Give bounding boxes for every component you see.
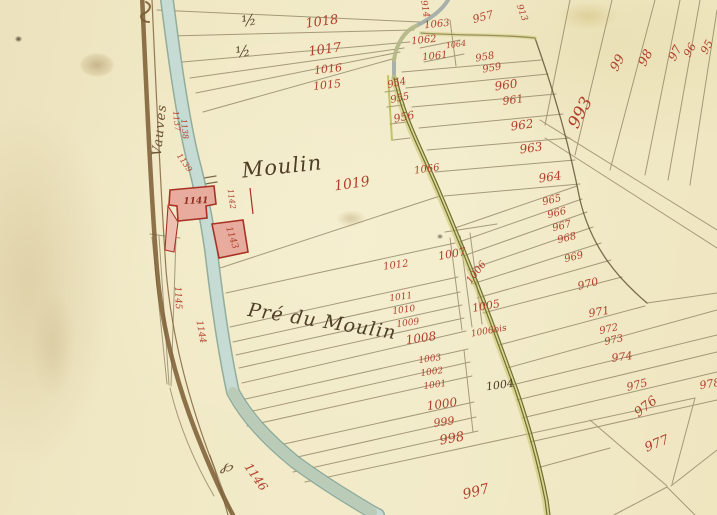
building-1142: 1142	[226, 188, 237, 209]
parcel-1018: 1018	[305, 13, 340, 30]
place-label-vauves: Vauves	[151, 103, 169, 156]
parcel-968: 968	[557, 232, 578, 246]
parcel-962: 962	[510, 117, 534, 132]
parcel-973: 973	[604, 334, 625, 348]
building-1141: 1141	[183, 197, 208, 207]
parcel-1006bis: 1006bis	[470, 324, 507, 339]
parcel-1138: 1138	[179, 118, 189, 139]
fraction-label: ½	[241, 12, 258, 29]
parcel-954: 954	[387, 77, 408, 91]
flow-mark: ℘	[220, 457, 235, 475]
parcel-1062: 1062	[411, 35, 437, 48]
parcel-1016: 1016	[314, 62, 343, 76]
parcel-913: 913	[514, 3, 528, 22]
fraction-label: ½	[235, 43, 252, 60]
parcel-1146: 1146	[242, 461, 269, 493]
parcel-1007: 1007	[437, 246, 466, 262]
parcel-1006: 1006	[465, 260, 489, 286]
parcel-96: 96	[682, 41, 698, 59]
place-label-moulin: Moulin	[241, 152, 323, 181]
parcel-1002: 1002	[420, 367, 444, 379]
place-label-pre-du-moulin: Pré du Moulin	[246, 301, 397, 343]
parcel-1015: 1015	[313, 78, 342, 92]
parcel-961: 961	[502, 93, 524, 107]
parcel-974: 974	[611, 350, 633, 364]
parcel-975: 975	[625, 377, 648, 393]
parcel-1017: 1017	[308, 41, 343, 58]
parcel-1012: 1012	[383, 259, 410, 272]
parcel-1000: 1000	[426, 396, 458, 412]
parcel-998: 998	[439, 430, 466, 447]
parcel-99: 99	[608, 53, 627, 74]
cadastral-map: MoulinPré du MoulinVauves½½℘101810171016…	[0, 0, 717, 515]
parcel-1064: 1064	[445, 40, 466, 51]
parcel-976: 976	[632, 394, 660, 420]
parcel-1019: 1019	[333, 175, 370, 194]
parcel-1063: 1063	[424, 19, 450, 32]
parcel-997: 997	[461, 482, 490, 502]
parcel-978: 978	[699, 377, 717, 391]
parcel-1145: 1145	[172, 286, 182, 309]
parcel-1005: 1005	[471, 298, 500, 314]
parcel-963: 963	[519, 140, 543, 155]
parcel-955: 955	[390, 92, 411, 106]
parcel-1139: 1139	[175, 152, 193, 173]
building-1143: 1143	[223, 226, 239, 251]
parcel-971: 971	[588, 305, 611, 319]
parcel-964: 964	[538, 169, 562, 184]
parcel-957: 957	[471, 9, 494, 25]
parcel-914: 914	[418, 0, 430, 18]
parcel-1008: 1008	[405, 330, 437, 346]
parcel-1009: 1009	[396, 318, 420, 330]
parcel-960: 960	[494, 77, 518, 92]
parcel-1001: 1001	[423, 380, 447, 392]
parcel-999: 999	[433, 415, 455, 429]
parcel-98: 98	[636, 48, 655, 69]
parcel-993: 993	[566, 95, 596, 132]
parcel-956: 956	[393, 109, 416, 124]
parcel-1144: 1144	[194, 320, 207, 344]
parcel-1066: 1066	[414, 163, 441, 176]
parcel-970: 970	[576, 276, 599, 292]
parcel-1004: 1004	[485, 378, 514, 393]
parcel-1061: 1061	[422, 51, 448, 64]
parcel-1011: 1011	[389, 292, 413, 304]
parcel-969: 969	[564, 251, 585, 265]
parcel-1010: 1010	[392, 305, 416, 317]
map-labels: MoulinPré du MoulinVauves½½℘101810171016…	[0, 0, 717, 515]
parcel-1003: 1003	[418, 354, 442, 366]
parcel-977: 977	[643, 433, 671, 454]
parcel-95: 95	[699, 38, 715, 56]
parcel-959: 959	[482, 62, 503, 75]
